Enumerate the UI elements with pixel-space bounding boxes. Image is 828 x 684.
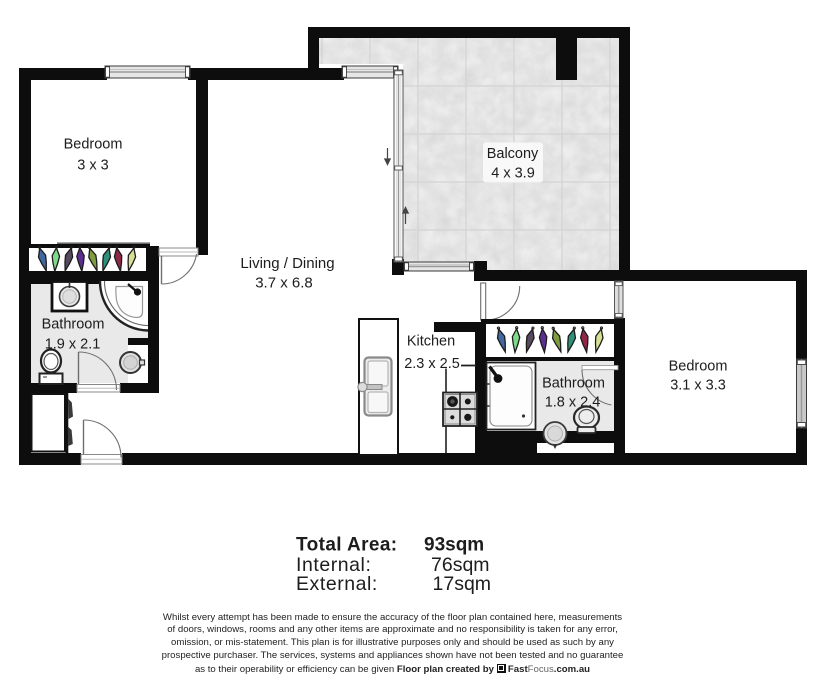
- svg-text:3.7 x 6.8: 3.7 x 6.8: [255, 275, 313, 292]
- svg-text:17sqm: 17sqm: [433, 573, 492, 595]
- svg-text:Bathroom: Bathroom: [42, 317, 105, 333]
- svg-text:Bedroom: Bedroom: [64, 137, 123, 153]
- svg-text:2.3 x 2.5: 2.3 x 2.5: [404, 356, 460, 372]
- svg-text:Total Area:: Total Area:: [296, 535, 398, 556]
- svg-text:4 x 3.9: 4 x 3.9: [491, 166, 535, 182]
- svg-text:1.9 x 2.1: 1.9 x 2.1: [45, 337, 101, 353]
- svg-text:Kitchen: Kitchen: [407, 334, 455, 350]
- svg-text:Bathroom: Bathroom: [542, 376, 605, 392]
- svg-text:External:: External:: [296, 573, 378, 595]
- svg-text:Living / Dining: Living / Dining: [240, 255, 334, 272]
- svg-text:3.1 x 3.3: 3.1 x 3.3: [670, 378, 726, 394]
- svg-text:Bedroom: Bedroom: [669, 359, 728, 375]
- svg-text:Balcony: Balcony: [487, 146, 539, 162]
- svg-text:3 x 3: 3 x 3: [77, 158, 108, 174]
- svg-text:93sqm: 93sqm: [424, 535, 484, 556]
- svg-text:1.8 x 2.4: 1.8 x 2.4: [545, 395, 601, 411]
